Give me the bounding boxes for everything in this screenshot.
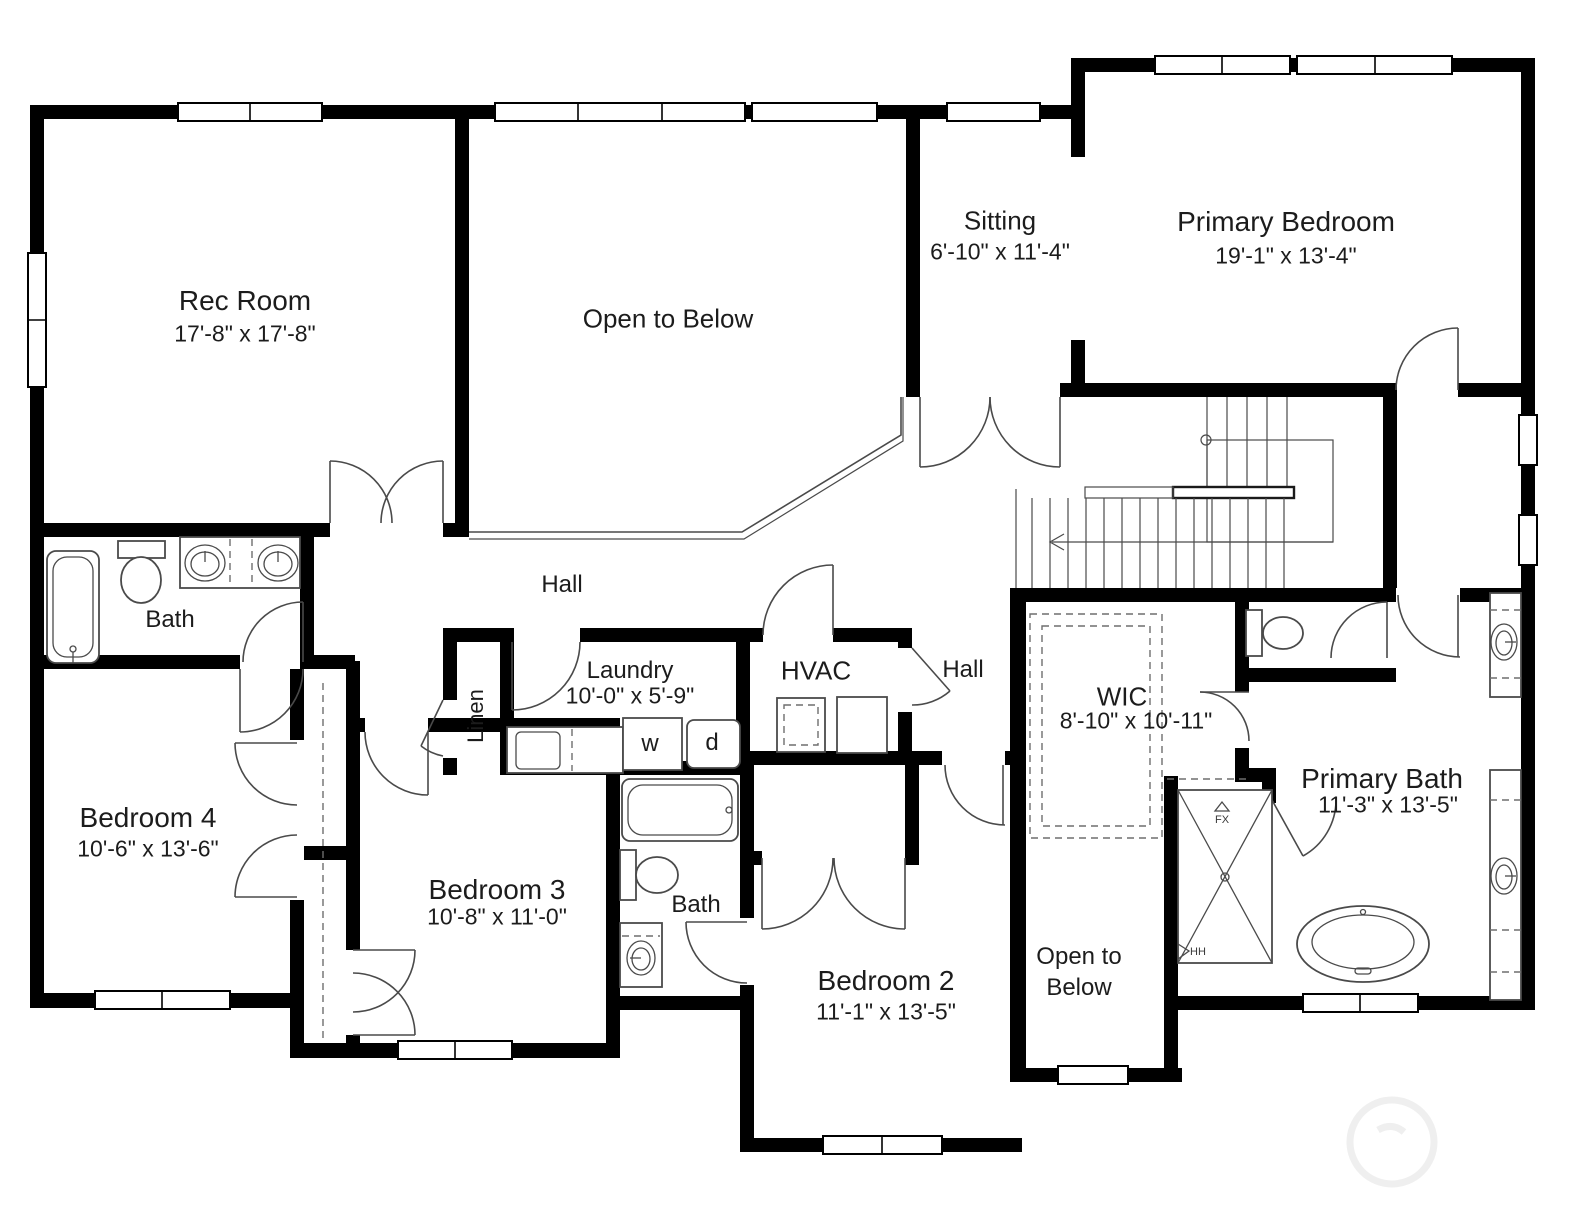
primary-bath-label: Primary Bath [1301,763,1463,795]
primary-bath-dims: 11'-3" x 13'-5" [1318,792,1458,819]
open-to-below-bottom-label-2: Below [1046,974,1111,1002]
hvac-unit-icon [777,697,887,753]
sitting-label: Sitting [964,206,1036,237]
toilet-icon [118,541,165,603]
shower-fx-label: FX [1215,814,1229,826]
freestanding-tub-icon [1297,906,1429,982]
rec-room-double-door [330,461,443,523]
bedroom3-label: Bedroom 3 [429,874,566,906]
bedroom4-label: Bedroom 4 [80,802,217,834]
stair-direction-arrow [1050,534,1333,550]
bedroom3-dims: 10'-8" x 11'-0" [427,904,567,931]
bath-middle-door [686,922,747,983]
staircase [1016,397,1333,588]
open-to-below-bottom-label-1: Open to [1036,943,1121,971]
water-closet-door [1331,602,1387,658]
stair-railing [1173,487,1294,498]
sitting-dims: 6'-10" x 11'-4" [930,239,1070,266]
bath-left-door [243,602,303,662]
dryer-label: d [705,729,718,757]
laundry-dims: 10'-0" x 5'-9" [566,683,695,710]
shower-hh-label: HH [1190,946,1206,958]
laundry-counter-sink-icon [507,727,623,773]
bath-left-label: Bath [145,606,194,634]
rec-room-dims: 17'-8" x 17'-8" [174,321,315,348]
bathtub-icon [47,551,99,663]
primary-bath-door [1398,595,1460,657]
bedroom4-dims: 10'-6" x 13'-6" [77,836,218,863]
linen-label: Linen [463,689,489,743]
bedroom4-closet-doors [235,743,297,897]
sitting-double-door [920,397,1060,467]
primary-bedroom-door [1396,328,1458,390]
double-vanity-icon [180,537,300,588]
hall-left-label: Hall [541,571,582,599]
wic-dims: 8'-10" x 10'-11" [1060,708,1213,735]
balcony-rail [469,397,903,539]
bedroom2-closet-doors [762,858,905,929]
toilet-icon [620,850,678,900]
sink-vanity-icon [620,923,662,987]
hall-right-label: Hall [942,656,983,684]
bedroom2-dims: 11'-1" x 13'-5" [816,999,956,1026]
rec-room-label: Rec Room [179,285,311,317]
bedroom2-door [945,765,1005,825]
laundry-label: Laundry [587,657,674,685]
bath-middle-label: Bath [671,891,720,919]
bedroom2-label: Bedroom 2 [818,965,955,997]
vanity-sink-icon [1490,593,1521,697]
open-to-below-top-label: Open to Below [583,304,754,335]
primary-bedroom-dims: 19'-1" x 13'-4" [1215,243,1356,270]
bathtub-icon [622,779,738,841]
bedroom3-closet-doors [353,950,415,1035]
bedroom3-door [365,732,428,795]
hvac-door [763,565,833,635]
floor-plan-drawing [0,0,1581,1213]
hvac-label: HVAC [781,656,851,687]
washer-label: w [641,730,658,758]
primary-bedroom-label: Primary Bedroom [1177,206,1395,238]
vanity-sink-icon [1490,770,1521,1000]
toilet-icon [1246,610,1303,656]
floor-plan: Rec Room 17'-8" x 17'-8" Open to Below S… [0,0,1581,1213]
watermark [1350,1100,1434,1184]
